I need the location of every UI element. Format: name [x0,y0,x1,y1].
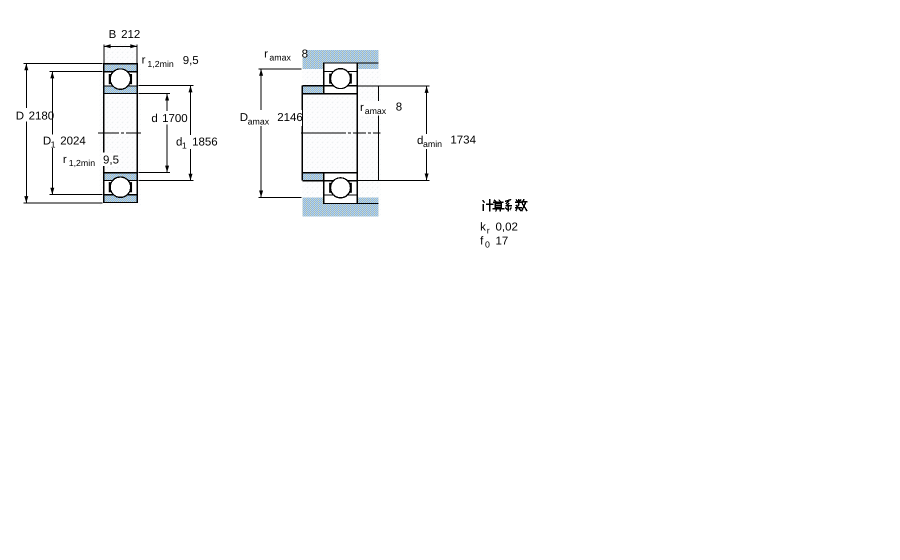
svg-text:1734: 1734 [450,135,476,147]
svg-text:r: r [264,49,268,61]
svg-text:B: B [109,29,117,41]
svg-text:amax: amax [248,117,270,127]
svg-text:d: d [151,113,157,125]
svg-text:r: r [487,226,490,236]
svg-text:r: r [142,54,146,66]
svg-text:0,02: 0,02 [496,222,518,234]
svg-text:8: 8 [396,101,402,113]
svg-text:1,2min: 1,2min [147,59,174,69]
svg-text:2146: 2146 [277,112,303,124]
svg-text:0: 0 [485,240,490,250]
svg-text:17: 17 [496,236,509,248]
svg-text:1700: 1700 [162,113,188,125]
svg-text:1856: 1856 [192,136,218,148]
svg-text:r: r [63,154,67,166]
svg-text:9,5: 9,5 [103,154,119,166]
svg-text:212: 212 [121,29,140,41]
svg-text:amax: amax [365,106,387,116]
svg-text:2180: 2180 [29,110,55,122]
svg-text:1: 1 [51,139,56,149]
svg-text:r: r [360,102,364,114]
svg-text:amin: amin [423,139,442,149]
svg-text:9,5: 9,5 [183,55,199,67]
svg-text:f: f [480,236,484,248]
svg-text:8: 8 [302,48,308,60]
svg-text:amax: amax [269,52,291,62]
svg-text:D: D [16,110,24,122]
svg-text:2024: 2024 [60,136,86,148]
svg-text:1: 1 [182,140,187,150]
svg-text:1,2min: 1,2min [69,158,96,168]
svg-text:k: k [480,222,486,234]
